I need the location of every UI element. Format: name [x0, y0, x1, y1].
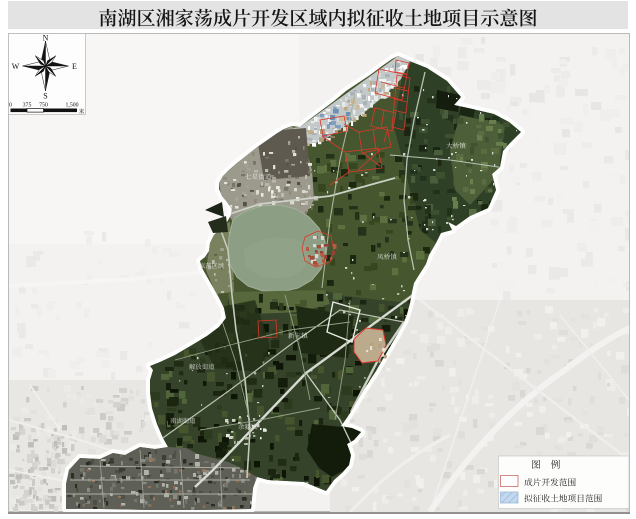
svg-text:0: 0: [9, 103, 12, 109]
svg-text:E: E: [72, 62, 77, 71]
svg-text:W: W: [12, 62, 20, 71]
svg-text:S: S: [43, 92, 47, 101]
svg-text:N: N: [43, 34, 49, 43]
svg-text:375: 375: [23, 103, 32, 109]
svg-text:750: 750: [39, 103, 48, 109]
svg-text:1,500: 1,500: [65, 103, 78, 109]
